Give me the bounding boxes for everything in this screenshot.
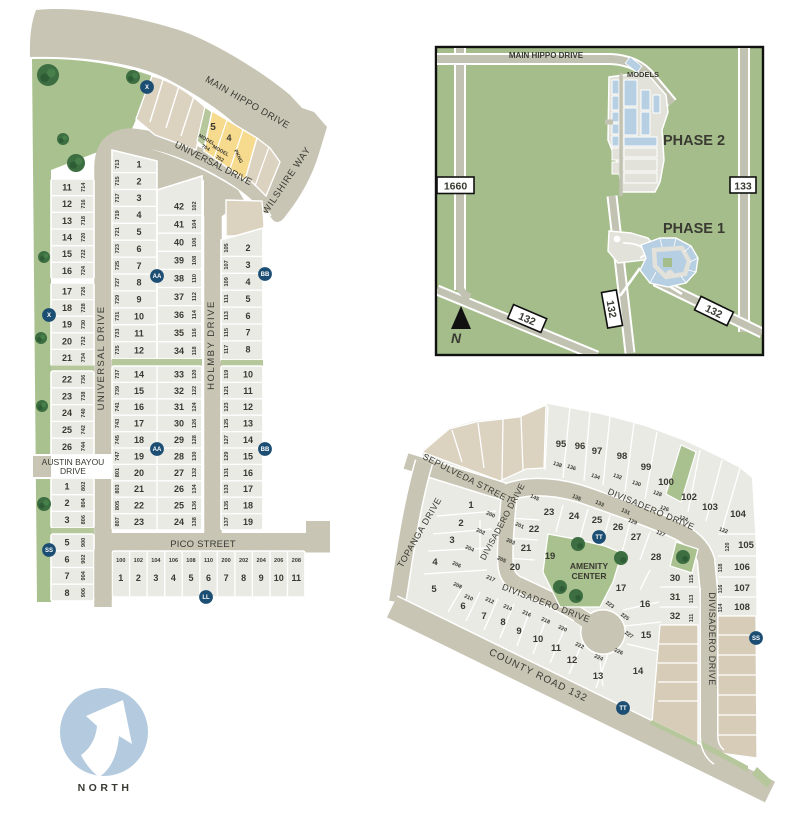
svg-text:107: 107 bbox=[224, 260, 230, 269]
svg-text:130: 130 bbox=[192, 452, 198, 461]
svg-text:109: 109 bbox=[224, 277, 230, 286]
svg-text:BB: BB bbox=[261, 447, 270, 453]
svg-text:118: 118 bbox=[192, 346, 198, 355]
svg-text:6: 6 bbox=[460, 601, 465, 612]
svg-text:128: 128 bbox=[192, 435, 198, 444]
svg-text:15: 15 bbox=[243, 451, 253, 461]
svg-text:105: 105 bbox=[738, 540, 755, 551]
svg-text:12: 12 bbox=[243, 402, 253, 412]
svg-text:5: 5 bbox=[64, 538, 69, 548]
svg-text:806: 806 bbox=[81, 515, 87, 524]
svg-text:804: 804 bbox=[81, 497, 87, 507]
svg-text:17: 17 bbox=[134, 419, 144, 429]
svg-text:16: 16 bbox=[640, 599, 651, 610]
svg-text:14: 14 bbox=[243, 435, 253, 445]
svg-text:719: 719 bbox=[115, 210, 121, 219]
svg-text:735: 735 bbox=[115, 345, 121, 354]
svg-text:747: 747 bbox=[115, 452, 121, 461]
svg-text:126: 126 bbox=[192, 419, 198, 428]
svg-text:20: 20 bbox=[510, 562, 521, 573]
svg-text:739: 739 bbox=[115, 386, 121, 395]
svg-text:728: 728 bbox=[81, 303, 87, 312]
svg-text:902: 902 bbox=[81, 554, 87, 563]
svg-text:1: 1 bbox=[64, 482, 69, 492]
svg-text:744: 744 bbox=[81, 441, 87, 451]
svg-text:AA: AA bbox=[153, 274, 162, 280]
svg-text:13: 13 bbox=[593, 671, 604, 682]
svg-text:SS: SS bbox=[752, 636, 760, 642]
svg-text:3: 3 bbox=[64, 515, 69, 525]
svg-text:PHASE 1: PHASE 1 bbox=[663, 221, 725, 237]
svg-text:16: 16 bbox=[134, 402, 144, 412]
svg-text:107: 107 bbox=[734, 583, 750, 594]
svg-text:4: 4 bbox=[136, 210, 141, 220]
svg-text:733: 733 bbox=[115, 329, 121, 338]
svg-text:724: 724 bbox=[81, 265, 87, 275]
svg-text:721: 721 bbox=[115, 227, 121, 236]
svg-text:40: 40 bbox=[174, 238, 184, 248]
svg-text:14: 14 bbox=[62, 233, 72, 243]
svg-text:2: 2 bbox=[245, 243, 250, 253]
svg-text:11: 11 bbox=[134, 328, 144, 338]
svg-text:103: 103 bbox=[702, 502, 718, 513]
svg-text:807: 807 bbox=[115, 517, 121, 526]
svg-text:115: 115 bbox=[689, 575, 695, 584]
svg-text:118: 118 bbox=[718, 564, 724, 573]
svg-text:4: 4 bbox=[226, 133, 231, 143]
svg-text:38: 38 bbox=[174, 274, 184, 284]
svg-text:29: 29 bbox=[174, 435, 184, 445]
svg-text:DRIVE: DRIVE bbox=[60, 466, 86, 476]
svg-text:738: 738 bbox=[81, 392, 87, 401]
svg-text:5: 5 bbox=[136, 227, 141, 237]
svg-text:113: 113 bbox=[224, 311, 230, 320]
svg-text:11: 11 bbox=[292, 573, 302, 583]
svg-text:42: 42 bbox=[174, 201, 184, 211]
svg-text:8: 8 bbox=[500, 617, 505, 628]
svg-text:3: 3 bbox=[449, 535, 454, 546]
svg-text:136: 136 bbox=[192, 501, 198, 510]
svg-text:12: 12 bbox=[62, 199, 72, 209]
svg-text:134: 134 bbox=[192, 483, 198, 493]
svg-text:23: 23 bbox=[62, 391, 72, 401]
svg-text:100: 100 bbox=[116, 558, 125, 564]
svg-text:2: 2 bbox=[136, 176, 141, 186]
svg-text:36: 36 bbox=[174, 310, 184, 320]
svg-text:13: 13 bbox=[62, 216, 72, 226]
svg-text:123: 123 bbox=[224, 402, 230, 411]
svg-text:97: 97 bbox=[592, 446, 603, 457]
svg-text:1: 1 bbox=[468, 500, 474, 511]
svg-text:20: 20 bbox=[134, 468, 144, 478]
svg-text:6: 6 bbox=[136, 244, 141, 254]
svg-text:801: 801 bbox=[115, 468, 121, 477]
svg-text:5: 5 bbox=[188, 573, 193, 583]
svg-text:133: 133 bbox=[224, 484, 230, 493]
svg-text:HOLMBY DRIVE: HOLMBY DRIVE bbox=[206, 300, 217, 390]
svg-text:19: 19 bbox=[545, 551, 556, 562]
svg-text:803: 803 bbox=[115, 484, 121, 493]
svg-text:21: 21 bbox=[62, 353, 72, 363]
svg-text:131: 131 bbox=[224, 468, 230, 477]
svg-text:95: 95 bbox=[556, 439, 567, 450]
svg-text:N: N bbox=[451, 330, 462, 346]
svg-text:206: 206 bbox=[274, 558, 283, 564]
svg-text:17: 17 bbox=[616, 583, 627, 594]
svg-text:730: 730 bbox=[81, 320, 87, 329]
svg-text:18: 18 bbox=[243, 501, 253, 511]
svg-text:DIVISADERO DRIVE: DIVISADERO DRIVE bbox=[707, 592, 717, 686]
svg-text:3: 3 bbox=[136, 193, 141, 203]
svg-text:32: 32 bbox=[670, 611, 681, 622]
svg-text:CENTER: CENTER bbox=[572, 571, 607, 581]
svg-text:718: 718 bbox=[81, 216, 87, 225]
svg-text:105: 105 bbox=[224, 243, 230, 252]
svg-text:108: 108 bbox=[192, 256, 198, 265]
svg-text:18: 18 bbox=[62, 303, 72, 313]
svg-text:717: 717 bbox=[115, 193, 121, 202]
svg-text:200: 200 bbox=[221, 558, 230, 564]
svg-text:740: 740 bbox=[81, 408, 87, 417]
svg-text:120: 120 bbox=[725, 543, 731, 552]
svg-text:6: 6 bbox=[64, 554, 69, 564]
svg-text:41: 41 bbox=[174, 219, 184, 229]
svg-text:22: 22 bbox=[62, 375, 72, 385]
svg-text:98: 98 bbox=[617, 451, 628, 462]
svg-text:110: 110 bbox=[192, 274, 198, 283]
svg-text:X: X bbox=[47, 313, 51, 319]
svg-text:1: 1 bbox=[118, 573, 123, 583]
svg-text:28: 28 bbox=[174, 451, 184, 461]
svg-text:21: 21 bbox=[134, 484, 144, 494]
svg-text:102: 102 bbox=[681, 492, 697, 503]
svg-text:102: 102 bbox=[192, 201, 198, 210]
svg-text:722: 722 bbox=[81, 249, 87, 258]
svg-text:21: 21 bbox=[521, 543, 532, 554]
svg-text:MAIN HIPPO DRIVE: MAIN HIPPO DRIVE bbox=[509, 51, 584, 60]
svg-text:13: 13 bbox=[243, 419, 253, 429]
svg-text:2: 2 bbox=[136, 573, 141, 583]
svg-text:742: 742 bbox=[81, 425, 87, 434]
svg-text:15: 15 bbox=[62, 249, 72, 259]
svg-text:22: 22 bbox=[529, 524, 540, 535]
svg-text:20: 20 bbox=[62, 336, 72, 346]
svg-text:112: 112 bbox=[192, 292, 198, 301]
svg-text:117: 117 bbox=[224, 345, 230, 354]
svg-text:12: 12 bbox=[134, 345, 144, 355]
svg-text:UNIVERSAL DRIVE: UNIVERSAL DRIVE bbox=[96, 306, 107, 411]
svg-text:8: 8 bbox=[136, 278, 141, 288]
svg-text:25: 25 bbox=[62, 425, 72, 435]
svg-text:11: 11 bbox=[551, 643, 562, 654]
svg-text:19: 19 bbox=[243, 517, 253, 527]
svg-text:106: 106 bbox=[192, 238, 198, 247]
svg-text:116: 116 bbox=[192, 328, 198, 337]
svg-text:9: 9 bbox=[516, 626, 521, 637]
svg-text:11: 11 bbox=[62, 183, 72, 193]
svg-text:805: 805 bbox=[115, 501, 121, 510]
svg-text:716: 716 bbox=[81, 199, 87, 208]
svg-text:6: 6 bbox=[206, 573, 211, 583]
svg-text:SS: SS bbox=[45, 548, 53, 554]
svg-text:108: 108 bbox=[734, 602, 750, 613]
svg-text:734: 734 bbox=[81, 352, 87, 362]
svg-text:31: 31 bbox=[174, 402, 184, 412]
svg-text:10: 10 bbox=[243, 369, 253, 379]
svg-text:1660: 1660 bbox=[444, 181, 468, 193]
svg-text:4: 4 bbox=[171, 573, 176, 583]
svg-text:18: 18 bbox=[134, 435, 144, 445]
svg-text:5: 5 bbox=[245, 294, 250, 304]
svg-text:LL: LL bbox=[202, 595, 210, 601]
svg-text:96: 96 bbox=[575, 441, 586, 452]
svg-text:133: 133 bbox=[734, 181, 752, 193]
svg-text:720: 720 bbox=[81, 233, 87, 242]
svg-text:713: 713 bbox=[115, 160, 121, 169]
svg-text:28: 28 bbox=[651, 552, 662, 563]
svg-text:116: 116 bbox=[718, 585, 724, 594]
svg-text:731: 731 bbox=[115, 312, 121, 321]
svg-text:TT: TT bbox=[595, 535, 603, 541]
svg-text:124: 124 bbox=[192, 401, 198, 411]
svg-text:25: 25 bbox=[592, 515, 603, 526]
svg-text:30: 30 bbox=[670, 573, 681, 584]
svg-text:23: 23 bbox=[544, 507, 555, 518]
svg-text:24: 24 bbox=[174, 517, 184, 527]
svg-text:NORTH: NORTH bbox=[78, 782, 133, 794]
svg-text:119: 119 bbox=[224, 370, 230, 379]
svg-text:129: 129 bbox=[224, 452, 230, 461]
svg-text:104: 104 bbox=[192, 219, 198, 229]
svg-text:802: 802 bbox=[81, 482, 87, 491]
svg-text:114: 114 bbox=[192, 309, 198, 319]
svg-text:PHASE 2: PHASE 2 bbox=[663, 133, 725, 149]
svg-text:714: 714 bbox=[81, 182, 87, 192]
svg-text:723: 723 bbox=[115, 244, 121, 253]
svg-text:10: 10 bbox=[134, 312, 144, 322]
svg-text:31: 31 bbox=[670, 592, 681, 603]
svg-text:104: 104 bbox=[151, 558, 161, 564]
svg-text:104: 104 bbox=[730, 509, 747, 520]
svg-text:729: 729 bbox=[115, 295, 121, 304]
svg-text:137: 137 bbox=[224, 517, 230, 526]
svg-text:9: 9 bbox=[259, 573, 264, 583]
svg-text:24: 24 bbox=[569, 511, 580, 522]
svg-text:10: 10 bbox=[274, 573, 284, 583]
svg-text:208: 208 bbox=[292, 558, 301, 564]
svg-text:9: 9 bbox=[136, 295, 141, 305]
svg-text:7: 7 bbox=[224, 573, 229, 583]
svg-text:135: 135 bbox=[224, 501, 230, 510]
svg-text:7: 7 bbox=[64, 571, 69, 581]
svg-text:732: 732 bbox=[81, 336, 87, 345]
svg-text:715: 715 bbox=[115, 176, 121, 185]
svg-text:25: 25 bbox=[174, 501, 184, 511]
svg-text:35: 35 bbox=[174, 328, 184, 338]
svg-text:102: 102 bbox=[134, 558, 143, 564]
svg-text:106: 106 bbox=[734, 562, 750, 573]
svg-text:727: 727 bbox=[115, 278, 121, 287]
svg-text:27: 27 bbox=[631, 532, 642, 543]
svg-text:132: 132 bbox=[192, 468, 198, 477]
svg-text:737: 737 bbox=[115, 370, 121, 379]
svg-text:114: 114 bbox=[718, 604, 724, 613]
svg-text:7: 7 bbox=[481, 611, 486, 622]
svg-text:106: 106 bbox=[169, 558, 178, 564]
svg-text:8: 8 bbox=[241, 573, 246, 583]
svg-text:16: 16 bbox=[62, 266, 72, 276]
svg-text:33: 33 bbox=[174, 369, 184, 379]
svg-text:113: 113 bbox=[689, 595, 695, 604]
svg-text:BB: BB bbox=[261, 272, 270, 278]
svg-text:39: 39 bbox=[174, 256, 184, 266]
svg-text:24: 24 bbox=[62, 408, 72, 418]
svg-text:X: X bbox=[145, 85, 149, 91]
svg-text:34: 34 bbox=[174, 346, 184, 356]
svg-text:111: 111 bbox=[224, 294, 230, 303]
svg-text:30: 30 bbox=[174, 419, 184, 429]
svg-text:37: 37 bbox=[174, 292, 184, 302]
svg-text:7: 7 bbox=[245, 328, 250, 338]
svg-text:745: 745 bbox=[115, 435, 121, 444]
svg-text:26: 26 bbox=[613, 522, 624, 533]
svg-text:16: 16 bbox=[243, 468, 253, 478]
svg-text:736: 736 bbox=[81, 375, 87, 384]
svg-text:TT: TT bbox=[619, 706, 627, 712]
svg-text:14: 14 bbox=[633, 666, 644, 677]
svg-text:22: 22 bbox=[134, 501, 144, 511]
svg-text:15: 15 bbox=[641, 630, 652, 641]
svg-text:202: 202 bbox=[239, 558, 248, 564]
svg-text:743: 743 bbox=[115, 419, 121, 428]
svg-text:121: 121 bbox=[224, 386, 230, 395]
svg-text:19: 19 bbox=[62, 320, 72, 330]
svg-text:4: 4 bbox=[432, 557, 438, 568]
svg-text:8: 8 bbox=[245, 345, 250, 355]
svg-text:AMENITY: AMENITY bbox=[570, 561, 609, 571]
svg-text:906: 906 bbox=[81, 588, 87, 597]
svg-text:725: 725 bbox=[115, 261, 121, 270]
svg-text:6: 6 bbox=[245, 311, 250, 321]
svg-text:204: 204 bbox=[257, 558, 267, 564]
svg-text:1: 1 bbox=[136, 159, 141, 169]
svg-text:900: 900 bbox=[81, 538, 87, 547]
svg-text:32: 32 bbox=[174, 386, 184, 396]
svg-text:122: 122 bbox=[192, 386, 198, 395]
svg-text:3: 3 bbox=[245, 260, 250, 270]
svg-text:8: 8 bbox=[64, 588, 69, 598]
svg-text:108: 108 bbox=[186, 558, 195, 564]
svg-text:3: 3 bbox=[153, 573, 158, 583]
svg-text:741: 741 bbox=[115, 402, 121, 411]
svg-text:138: 138 bbox=[192, 517, 198, 526]
svg-text:5: 5 bbox=[431, 584, 437, 595]
svg-text:5: 5 bbox=[210, 122, 216, 133]
svg-text:125: 125 bbox=[224, 419, 230, 428]
svg-text:99: 99 bbox=[641, 462, 652, 473]
svg-text:120: 120 bbox=[192, 370, 198, 379]
svg-text:26: 26 bbox=[62, 442, 72, 452]
svg-text:23: 23 bbox=[134, 517, 144, 527]
svg-text:14: 14 bbox=[134, 369, 144, 379]
svg-text:100: 100 bbox=[658, 477, 674, 488]
svg-text:AA: AA bbox=[153, 447, 162, 453]
svg-text:19: 19 bbox=[134, 451, 144, 461]
svg-text:4: 4 bbox=[245, 277, 250, 287]
svg-text:PICO STREET: PICO STREET bbox=[170, 539, 236, 550]
svg-text:17: 17 bbox=[243, 484, 253, 494]
svg-text:27: 27 bbox=[174, 468, 184, 478]
svg-text:15: 15 bbox=[134, 386, 144, 396]
svg-text:7: 7 bbox=[136, 261, 141, 271]
svg-text:110: 110 bbox=[204, 558, 213, 564]
svg-text:17: 17 bbox=[62, 287, 72, 297]
svg-text:127: 127 bbox=[224, 435, 230, 444]
svg-text:2: 2 bbox=[458, 518, 463, 529]
svg-text:115: 115 bbox=[224, 328, 230, 337]
svg-text:26: 26 bbox=[174, 484, 184, 494]
svg-text:12: 12 bbox=[567, 655, 578, 666]
svg-text:MODELS: MODELS bbox=[627, 70, 659, 79]
svg-text:111: 111 bbox=[689, 614, 695, 622]
svg-text:2: 2 bbox=[64, 498, 69, 508]
svg-text:10: 10 bbox=[533, 634, 544, 645]
svg-text:11: 11 bbox=[243, 386, 253, 396]
svg-text:904: 904 bbox=[81, 570, 87, 580]
svg-text:726: 726 bbox=[81, 287, 87, 296]
